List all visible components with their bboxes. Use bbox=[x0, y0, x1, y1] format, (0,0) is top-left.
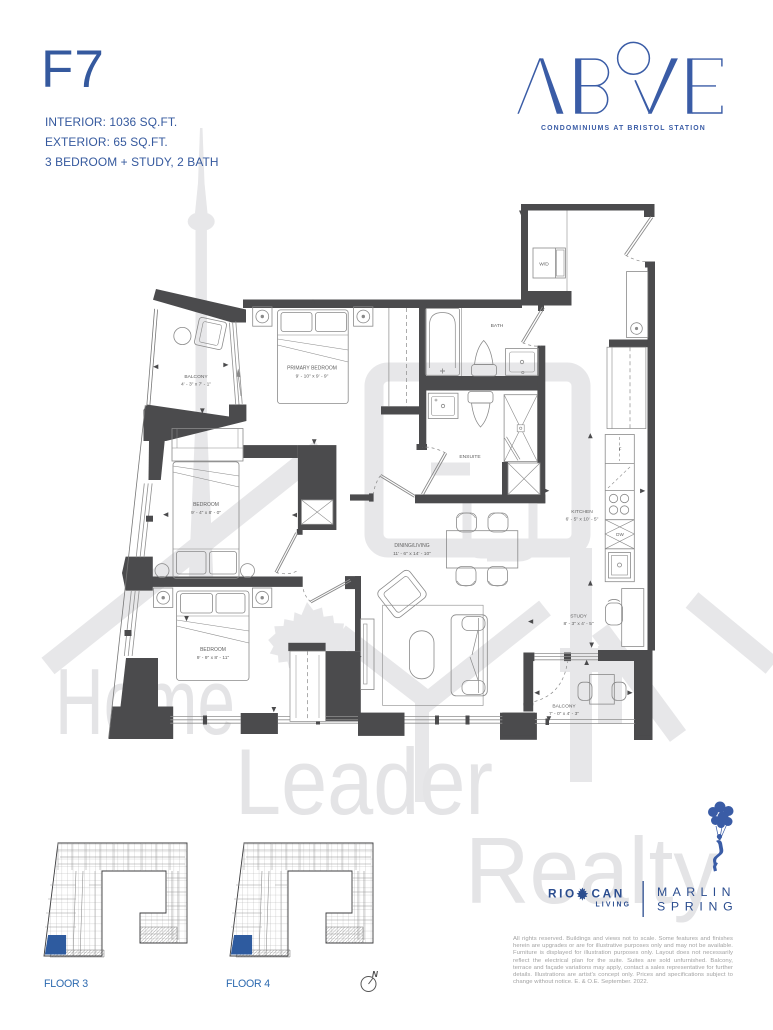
svg-text:9' - 4" x 8' - 0": 9' - 4" x 8' - 0" bbox=[191, 510, 221, 516]
svg-text:KITCHEN: KITCHEN bbox=[571, 509, 593, 515]
svg-text:8' - 3" x 4' - 5": 8' - 3" x 4' - 5" bbox=[564, 621, 594, 627]
svg-text:BALCONY: BALCONY bbox=[184, 374, 208, 380]
svg-text:BATH: BATH bbox=[491, 323, 504, 329]
svg-text:7' - 0" x 4' - 3": 7' - 0" x 4' - 3" bbox=[549, 711, 579, 717]
svg-text:BEDROOM: BEDROOM bbox=[200, 647, 226, 653]
svg-text:BEDROOM: BEDROOM bbox=[193, 502, 219, 508]
svg-text:N: N bbox=[372, 970, 378, 979]
svg-text:9' - 10" x 9' - 9": 9' - 10" x 9' - 9" bbox=[296, 374, 329, 380]
svg-text:DW: DW bbox=[616, 532, 624, 537]
svg-text:BALCONY: BALCONY bbox=[552, 704, 576, 710]
svg-text:DINING/LIVING: DINING/LIVING bbox=[394, 543, 429, 549]
svg-text:6' - 5" x 10' - 5": 6' - 5" x 10' - 5" bbox=[566, 517, 599, 523]
svg-text:STUDY: STUDY bbox=[570, 614, 587, 620]
svg-text:PRIMARY BEDROOM: PRIMARY BEDROOM bbox=[287, 366, 337, 372]
svg-text:9' - 9" x 8' - 11": 9' - 9" x 8' - 11" bbox=[197, 655, 230, 661]
svg-text:4' - 3" x 7' - 1": 4' - 3" x 7' - 1" bbox=[181, 382, 211, 388]
svg-text:W/D: W/D bbox=[539, 262, 549, 268]
svg-text:ENSUITE: ENSUITE bbox=[459, 454, 481, 460]
svg-text:11' - 6" x 14' - 10": 11' - 6" x 14' - 10" bbox=[393, 551, 431, 557]
svg-text:F: F bbox=[619, 447, 622, 452]
